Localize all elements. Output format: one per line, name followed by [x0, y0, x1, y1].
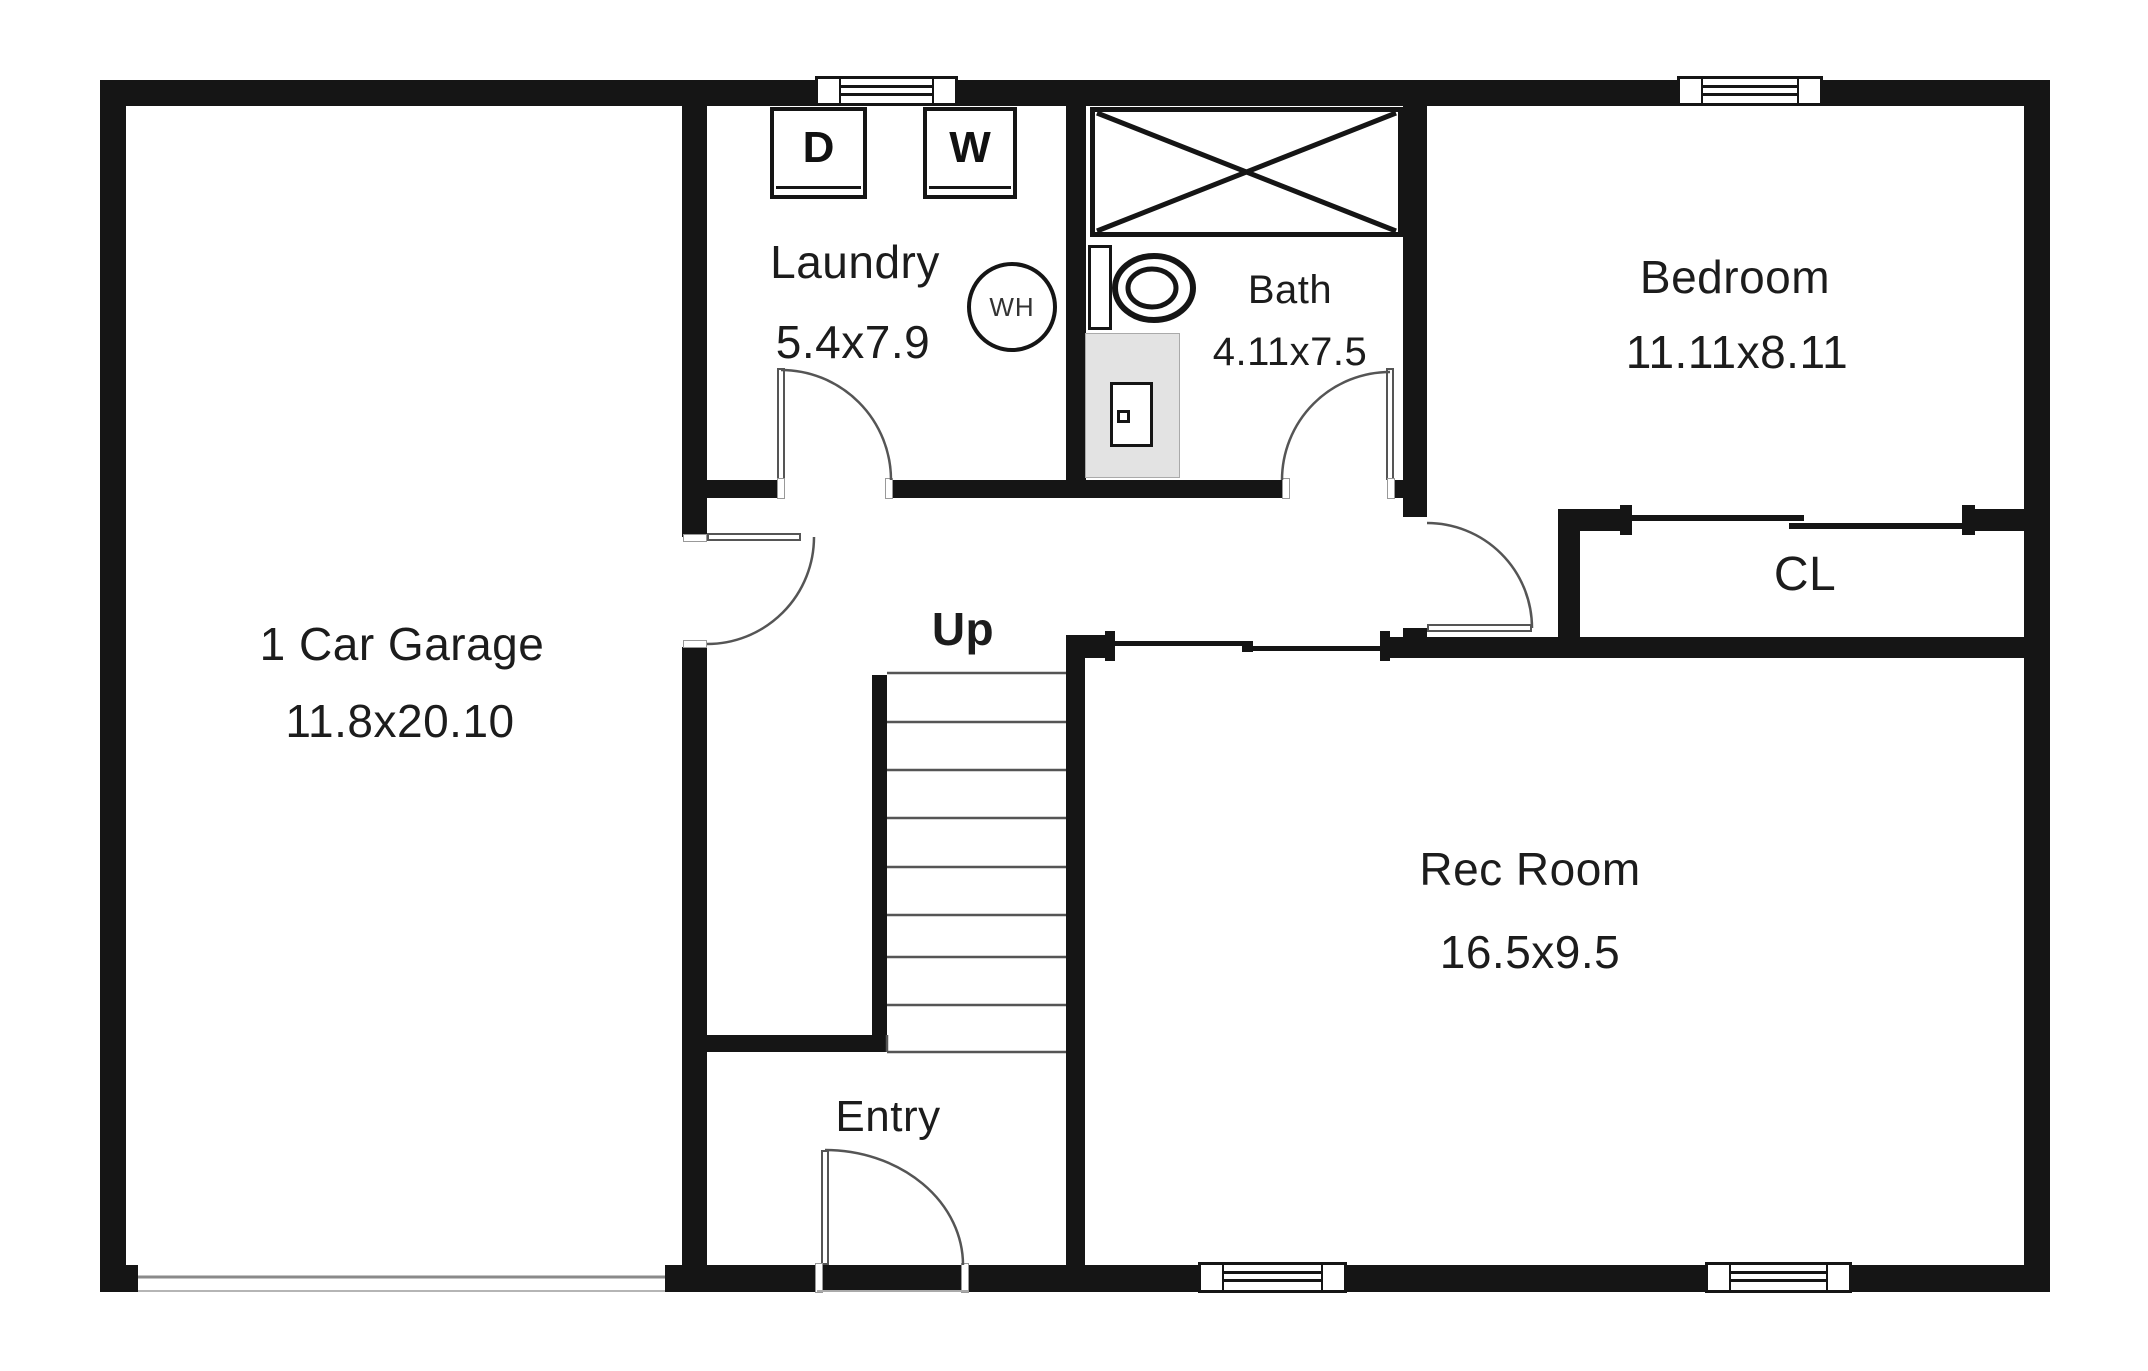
- wall-closet-north-stub-left: [1558, 509, 1620, 531]
- door-jamb: [777, 478, 785, 499]
- door-jamb: [885, 478, 893, 499]
- dryer: D: [770, 107, 867, 199]
- door-jamb: [961, 1263, 969, 1293]
- floor-plan: D W WH: [0, 0, 2148, 1371]
- water-heater-label: WH: [989, 292, 1034, 323]
- wall-recroom-north-corner: [1085, 635, 1105, 658]
- room-label-garage: 1 Car Garage: [260, 621, 545, 667]
- wall-garage-east-upper: [682, 105, 707, 537]
- door-leaf-laundry: [777, 368, 785, 480]
- window-bedroom-top: [1677, 76, 1823, 106]
- dryer-label: D: [803, 123, 835, 173]
- garage-door: [138, 1277, 665, 1291]
- window-frame: [1201, 1265, 1224, 1290]
- room-label-entry: Entry: [835, 1095, 940, 1139]
- wall-closet-west: [1558, 512, 1580, 658]
- window-recroom-bottom-2: [1705, 1262, 1852, 1293]
- door-leaf-bedroom: [1427, 624, 1532, 632]
- door-arc-entry: [825, 1150, 963, 1265]
- room-label-recroom: Rec Room: [1419, 846, 1640, 892]
- stair-treads: [887, 673, 1066, 1052]
- door-leaf-bath: [1386, 368, 1394, 480]
- door-jamb: [1282, 478, 1290, 499]
- opening-header-1: [1115, 641, 1253, 646]
- door-jamb: [683, 640, 707, 648]
- door-leaf-garage: [707, 533, 801, 541]
- door-jamb: [815, 1263, 823, 1293]
- opening-jamb-east: [1380, 631, 1390, 661]
- dryer-front-edge: [776, 186, 861, 189]
- door-arc-laundry: [781, 370, 891, 480]
- wall-hall-north-2: [892, 480, 1282, 498]
- wall-under-stair: [707, 1035, 887, 1052]
- toilet-bowl: [1115, 256, 1193, 320]
- closet-jamb-east: [1962, 505, 1975, 535]
- wall-garage-east-lower: [682, 647, 707, 1265]
- toilet-tank: [1088, 245, 1112, 330]
- sink-faucet: [1117, 410, 1130, 423]
- door-leaf-entry: [821, 1150, 829, 1265]
- room-label-bedroom: Bedroom: [1640, 254, 1830, 300]
- window-laundry-top: [815, 76, 958, 106]
- window-glass: [841, 79, 932, 103]
- wall-bedroom-west-upper: [1403, 105, 1427, 517]
- closet-sliding-door-panel-1: [1632, 515, 1804, 521]
- window-frame: [1797, 79, 1820, 103]
- closet-jamb-west: [1620, 505, 1632, 535]
- room-dims-bath: 4.11x7.5: [1213, 332, 1368, 372]
- washer: W: [923, 107, 1017, 199]
- water-heater: WH: [967, 262, 1057, 352]
- washer-front-edge: [929, 186, 1011, 189]
- wall-stair-east: [1066, 635, 1085, 1265]
- window-frame: [1826, 1265, 1849, 1290]
- wall-exterior-right: [2024, 80, 2050, 1292]
- washer-label: W: [949, 123, 991, 173]
- closet-sliding-door-panel-2: [1789, 523, 1962, 529]
- door-jamb: [1387, 478, 1395, 499]
- wall-hall-north-3: [1395, 480, 1403, 498]
- door-arc-bedroom: [1427, 523, 1532, 628]
- window-glass: [1731, 1265, 1826, 1290]
- window-glass: [1224, 1265, 1321, 1290]
- wall-exterior-bottom-left-stub: [100, 1265, 138, 1292]
- wall-recroom-north: [1390, 637, 1558, 658]
- window-recroom-bottom-1: [1198, 1262, 1347, 1293]
- window-frame: [1321, 1265, 1344, 1290]
- opening-jamb-west: [1105, 631, 1115, 661]
- stairs-up-label: Up: [932, 606, 994, 652]
- room-dims-bedroom: 11.11x8.11: [1626, 329, 1848, 375]
- door-arc-bath: [1282, 372, 1390, 480]
- room-label-bath: Bath: [1248, 270, 1332, 310]
- window-frame: [932, 79, 955, 103]
- window-frame: [1708, 1265, 1731, 1290]
- door-arc-garage: [707, 537, 814, 644]
- room-dims-recroom: 16.5x9.5: [1440, 929, 1620, 975]
- room-dims-garage: 11.8x20.10: [285, 698, 514, 744]
- room-label-closet: CL: [1774, 551, 1836, 599]
- window-frame: [818, 79, 841, 103]
- room-dims-laundry: 5.4x7.9: [776, 319, 930, 365]
- window-frame: [1680, 79, 1703, 103]
- wall-laundry-bath-divider: [1066, 105, 1086, 480]
- door-jamb: [683, 534, 707, 542]
- window-glass: [1703, 79, 1797, 103]
- wall-stair-west: [872, 675, 887, 1035]
- bathtub: [1090, 107, 1403, 237]
- wall-closet-north-stub-right: [1975, 509, 2024, 531]
- wall-exterior-left: [100, 80, 126, 1292]
- wall-hall-north-1: [707, 480, 777, 498]
- opening-header-step: [1242, 644, 1253, 652]
- opening-header-2: [1253, 646, 1380, 651]
- room-label-laundry: Laundry: [770, 239, 940, 285]
- wall-closet-south: [1558, 637, 2024, 658]
